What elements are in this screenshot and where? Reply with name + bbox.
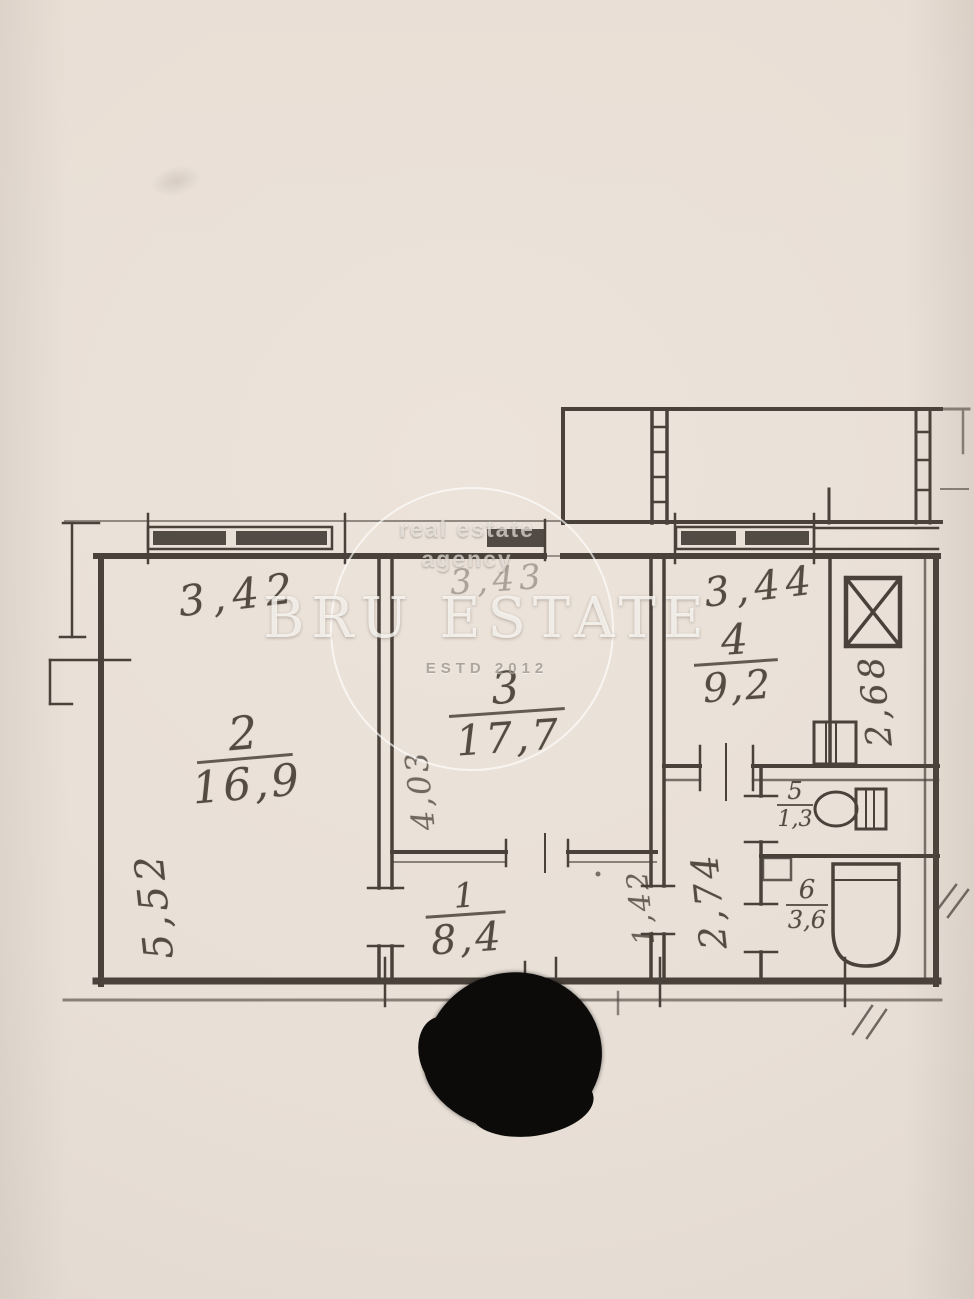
vent-shaft-icon: [846, 578, 900, 646]
room-area: 17,7: [454, 712, 562, 763]
left-dimension-brackets: [50, 523, 130, 704]
balcony-outline: [563, 409, 941, 523]
toilet-icon: [815, 789, 886, 829]
bathtub-icon: [833, 864, 899, 966]
dimension-kitchen-side: 2,68: [820, 657, 932, 743]
neighbor-structure-lines: [936, 409, 969, 489]
dimension-room3-depth: 4,03: [366, 755, 476, 825]
room-label-6: 6 3,6: [782, 878, 832, 933]
floor-plan-photo: 3,42 3,43 3,44 5,52 4,03 1,42 2,74 2,68 …: [0, 0, 974, 1299]
room-label-2: 2 16,9: [181, 707, 309, 813]
window-room2: [148, 527, 332, 549]
hatch-marks: [853, 885, 968, 1038]
room-number: 2: [226, 711, 259, 757]
dimension-room2-depth: 5,52: [95, 855, 215, 955]
room-number: 4: [720, 619, 749, 661]
room-label-4: 4 9,2: [683, 617, 789, 712]
room-number: 6: [799, 878, 816, 903]
dimension-room3-width: 3,43: [449, 557, 547, 604]
room-area: 1,3: [778, 808, 813, 831]
room-label-3: 3 17,7: [437, 663, 577, 764]
balcony-right-wall: [916, 409, 930, 523]
room-number: 3: [490, 667, 521, 711]
dimension-corridor-depth: 2,74: [652, 855, 766, 945]
room-number: 5: [787, 780, 802, 803]
balcony-divider: [652, 409, 667, 523]
room-area: 16,9: [190, 757, 304, 813]
wall-room3-hall: [392, 834, 656, 872]
washbasin-icon: [763, 858, 791, 880]
room-area: 3,6: [788, 908, 826, 933]
window-room4: [676, 527, 814, 549]
room-number: 1: [452, 879, 476, 913]
fraction-bar: [777, 804, 813, 806]
room-area: 8,4: [430, 916, 505, 963]
window-right-band: [814, 528, 938, 549]
room-label-1: 1 8,4: [413, 877, 518, 964]
room-area: 9,2: [701, 663, 773, 710]
balcony-door-window: [487, 529, 544, 547]
room-label-5: 5 1,3: [772, 780, 818, 831]
